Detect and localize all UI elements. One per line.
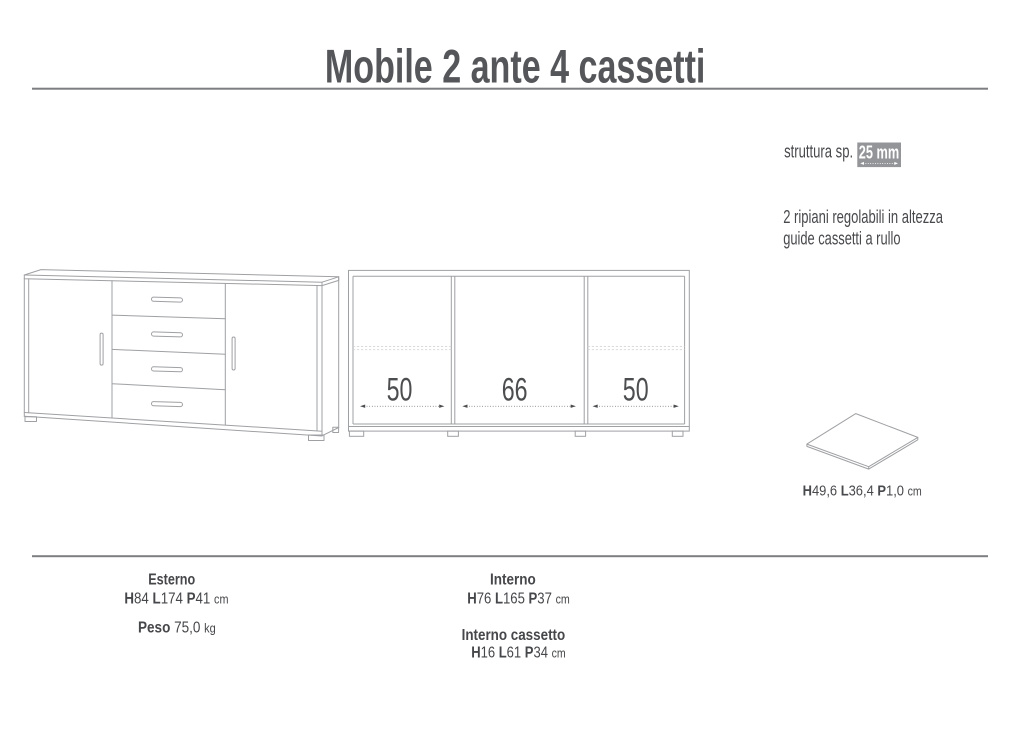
svg-text:Mobile 2 ante 4 cassetti: Mobile 2 ante 4 cassetti: [325, 41, 705, 94]
svg-text:50: 50: [623, 371, 649, 407]
svg-text:H16 L61 P34 cm: H16 L61 P34 cm: [471, 645, 566, 662]
svg-text:H49,6 L36,4 P1,0 cm: H49,6 L36,4 P1,0 cm: [803, 482, 922, 499]
svg-text:guide cassetti a rullo: guide cassetti a rullo: [783, 228, 900, 249]
svg-text:25 mm: 25 mm: [859, 141, 899, 162]
svg-text:struttura sp.: struttura sp.: [784, 141, 853, 162]
svg-text:66: 66: [502, 371, 528, 407]
svg-text:Interno cassetto: Interno cassetto: [462, 627, 566, 644]
svg-text:50: 50: [387, 371, 413, 407]
svg-text:Interno: Interno: [490, 571, 536, 588]
svg-text:Peso 75,0 kg: Peso 75,0 kg: [138, 620, 216, 637]
svg-text:H76 L165 P37 cm: H76 L165 P37 cm: [467, 591, 570, 608]
svg-text:H84 L174 P41 cm: H84 L174 P41 cm: [124, 591, 228, 608]
svg-text:2 ripiani regolabili in altezz: 2 ripiani regolabili in altezza: [783, 206, 943, 227]
svg-text:Esterno: Esterno: [148, 571, 195, 588]
